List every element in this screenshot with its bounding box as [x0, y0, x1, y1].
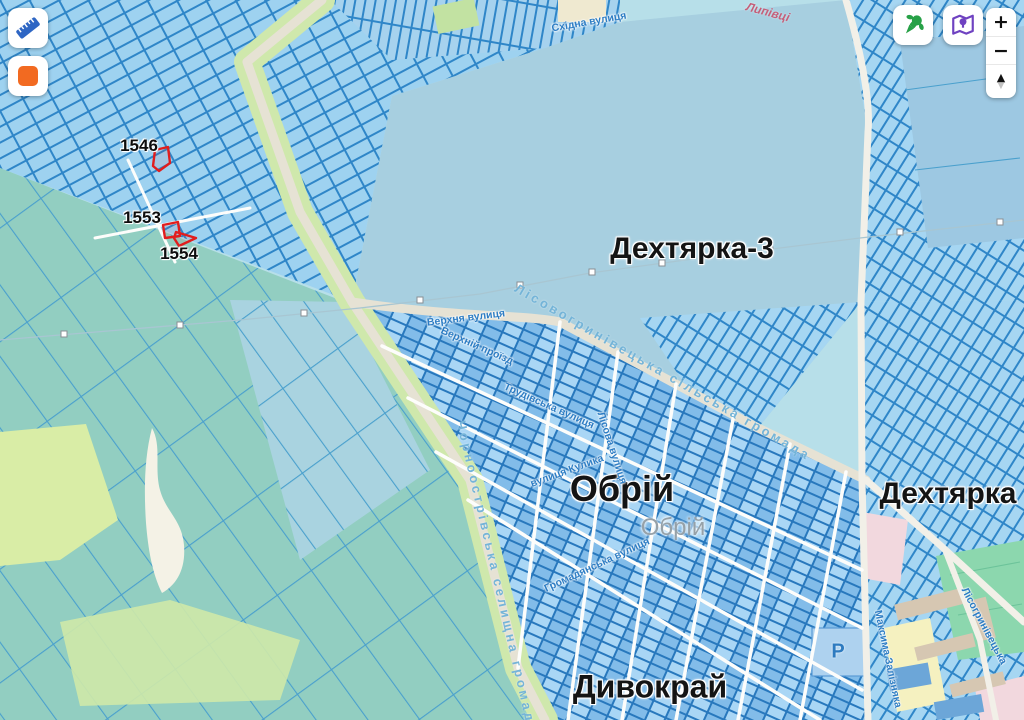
purple-map-icon [950, 12, 976, 38]
ruler-icon [15, 15, 41, 41]
tilt-down-arrow: ▼ [998, 82, 1005, 91]
orange-square-icon [16, 64, 40, 88]
measure-tool-button[interactable] [8, 8, 48, 48]
nature-layer-button[interactable] [893, 5, 933, 45]
tilt-button[interactable]: ▲ ▼ [986, 64, 1016, 98]
map-base-layer [0, 0, 1024, 720]
basemap-button[interactable] [943, 5, 983, 45]
map-canvas[interactable]: Дехтярка-3ОбрійДехтяркаДивокрайОбрій1546… [0, 0, 1024, 720]
draw-rectangle-button[interactable] [8, 56, 48, 96]
zoom-in-button[interactable]: + [986, 8, 1016, 36]
zoom-control: + − ▲ ▼ [986, 8, 1016, 98]
zoom-out-button[interactable]: − [986, 36, 1016, 64]
green-pin-icon [899, 11, 927, 39]
